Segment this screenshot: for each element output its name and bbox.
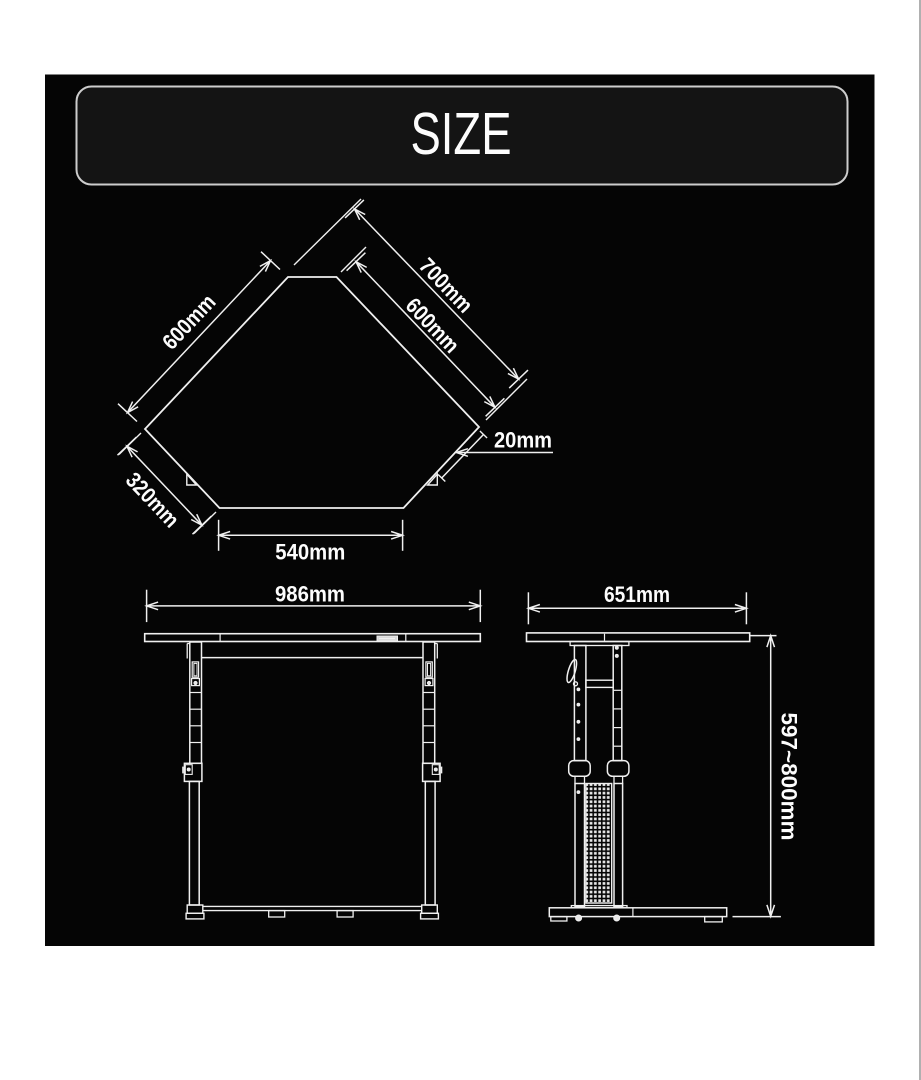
svg-text:986mm: 986mm — [275, 581, 345, 606]
svg-text:597~800mm: 597~800mm — [777, 713, 802, 841]
svg-text:651mm: 651mm — [604, 582, 670, 607]
svg-text:SIZE: SIZE — [411, 101, 512, 167]
svg-text:20mm: 20mm — [494, 428, 552, 453]
svg-text:540mm: 540mm — [275, 540, 345, 565]
